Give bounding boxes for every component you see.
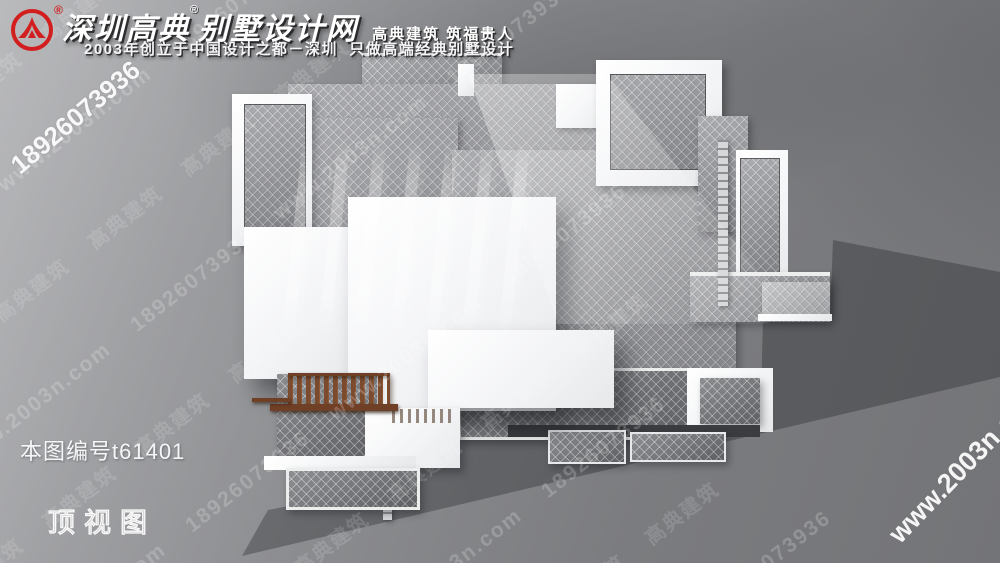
right-balcony-lip (758, 314, 832, 321)
right-balcony-steps (762, 282, 830, 316)
bottom-right-roof (700, 378, 760, 424)
villa-top-view (0, 0, 1000, 563)
site-header: ® 深圳高典®别墅设计网高典建筑 筑福贵人 2003年创立于中国设计之都－深圳 … (0, 0, 600, 62)
brand-logo-icon (8, 5, 56, 53)
site-subtitle: 2003年创立于中国设计之都－深圳 只做高端经典别墅设计 (84, 38, 514, 59)
bottom-small-roof-1 (548, 430, 626, 464)
roof-step-parapet (556, 84, 600, 128)
pergola-top-rail (288, 373, 390, 376)
tower-roof (610, 74, 706, 170)
left-wing-roof (244, 104, 306, 236)
chimney-right (718, 140, 728, 306)
flat-roof-center-lower (428, 330, 614, 408)
view-type-label: 顶视图 (48, 501, 156, 540)
lower-eave-roof (286, 468, 420, 510)
pergola-beam (270, 404, 398, 411)
bottom-small-roof-2 (630, 432, 726, 462)
right-wing-roof (740, 158, 780, 276)
drawing-number-label: 本图编号t61401 (20, 434, 185, 466)
render-canvas: 高典建筑 高典建筑 高典建筑 高典建筑 高典建筑 高典建筑 高典建筑 高典建筑 … (0, 0, 1000, 563)
roof-notch-parapet (458, 64, 474, 96)
pergola-slat-shadow (392, 409, 456, 423)
title-registered-mark: ® (190, 4, 198, 16)
pergola-left-rail (252, 398, 290, 402)
